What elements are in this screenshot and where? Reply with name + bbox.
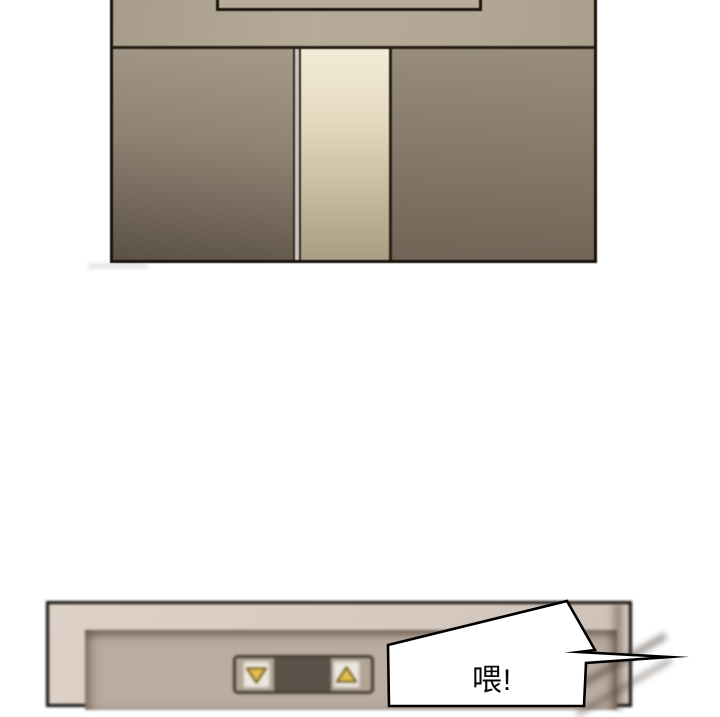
call-button-plate	[233, 655, 374, 694]
floor-display-frame	[216, 0, 482, 11]
elevator-doors	[113, 49, 594, 260]
left-elevator-door	[113, 49, 293, 260]
down-arrow-icon	[245, 665, 268, 685]
light-through-door-gap	[301, 49, 389, 260]
speech-bubble	[378, 588, 678, 706]
door-edge-strip	[293, 49, 301, 260]
speech-text: 喂!	[462, 664, 522, 698]
floor-indicator-display	[274, 658, 331, 691]
right-elevator-door	[392, 49, 594, 260]
floor-shadow-smudge	[88, 264, 148, 268]
down-call-button	[243, 661, 270, 688]
up-arrow-icon	[335, 665, 358, 685]
up-call-button	[333, 661, 360, 688]
speech-bubble-shape	[388, 601, 669, 706]
elevator-exterior-panel	[110, 0, 597, 263]
